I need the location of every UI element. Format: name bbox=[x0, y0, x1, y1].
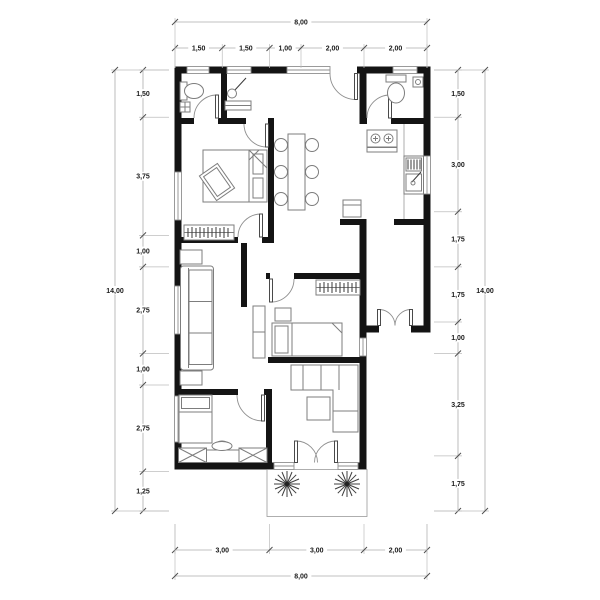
coffee-table-icon bbox=[307, 397, 330, 420]
toilet-icon bbox=[180, 82, 204, 100]
dim-label: 1,25 bbox=[136, 489, 150, 496]
plant-icon bbox=[334, 471, 360, 497]
dim-label: 2,75 bbox=[136, 308, 150, 315]
dimension-chains: 1,501,501,002,002,008,003,003,002,008,00… bbox=[103, 18, 498, 581]
dim-label: 2,75 bbox=[136, 426, 150, 433]
dim-label: 1,75 bbox=[451, 292, 465, 299]
dim-label: 14,00 bbox=[106, 288, 124, 295]
floor-plan-drawing: 1,501,501,002,002,008,003,003,002,008,00… bbox=[0, 0, 600, 600]
dim-label: 1,75 bbox=[451, 237, 465, 244]
window-icon bbox=[360, 338, 367, 356]
dim-label: 3,00 bbox=[451, 162, 465, 169]
cabinet-icon bbox=[253, 306, 265, 358]
door-swing-icon bbox=[237, 395, 265, 421]
dim-label: 1,50 bbox=[192, 45, 206, 52]
dim-label: 3,00 bbox=[215, 547, 229, 554]
dim-label: 8,00 bbox=[294, 19, 308, 26]
double-door-utility bbox=[378, 310, 413, 326]
dim-label: 3,00 bbox=[310, 547, 324, 554]
nightstand-icon bbox=[275, 308, 291, 321]
dim-label: 2,00 bbox=[326, 45, 340, 52]
single-bed-icon bbox=[272, 323, 342, 356]
dim-label: 3,75 bbox=[136, 174, 150, 181]
chair-icon bbox=[306, 139, 319, 152]
chair-icon bbox=[275, 139, 288, 152]
chair-icon bbox=[275, 193, 288, 206]
plant-icon bbox=[274, 471, 300, 497]
wardrobe-icon bbox=[316, 280, 360, 295]
dim-label: 1,00 bbox=[278, 45, 292, 52]
dim-label: 1,50 bbox=[136, 91, 150, 98]
door-swing-icon bbox=[367, 95, 392, 118]
chair-icon bbox=[306, 193, 319, 206]
dim-label: 14,00 bbox=[476, 288, 494, 295]
window-icon bbox=[424, 156, 431, 194]
door-swing-icon bbox=[238, 214, 263, 237]
dimension-chain-left: 1,503,751,002,751,002,751,2514,00 bbox=[103, 67, 170, 514]
chair-icon bbox=[275, 166, 288, 179]
toilet-icon bbox=[386, 75, 406, 103]
double-door-entry bbox=[295, 441, 338, 463]
dining-table-icon bbox=[275, 134, 319, 210]
shower-icon bbox=[225, 78, 251, 110]
door-swing-icon bbox=[244, 124, 269, 147]
dim-label: 1,50 bbox=[451, 91, 465, 98]
dim-label: 1,50 bbox=[239, 45, 253, 52]
desk-icon bbox=[205, 441, 241, 463]
dim-label: 3,25 bbox=[451, 402, 465, 409]
cabinet-icon bbox=[239, 448, 267, 463]
refrigerator-icon bbox=[343, 200, 361, 217]
window-icon bbox=[227, 67, 251, 74]
dim-label: 8,00 bbox=[294, 573, 308, 580]
stove-icon bbox=[367, 130, 397, 152]
dim-label: 1,00 bbox=[136, 367, 150, 374]
dim-label: 1,75 bbox=[451, 481, 465, 488]
porch bbox=[267, 470, 367, 517]
window-icon bbox=[175, 172, 182, 220]
dim-label: 1,00 bbox=[136, 249, 150, 256]
washbasin-icon bbox=[180, 102, 190, 112]
window-icon bbox=[393, 67, 417, 74]
dimension-chain-right: 1,503,001,751,751,003,251,7514,00 bbox=[434, 67, 498, 514]
side-table-icon bbox=[180, 250, 202, 264]
wardrobe-icon bbox=[184, 225, 234, 240]
chair-icon bbox=[212, 442, 232, 451]
door-swing-icon bbox=[330, 74, 358, 100]
window-icon bbox=[187, 67, 209, 74]
window-icon bbox=[274, 463, 294, 470]
window-icon bbox=[287, 67, 330, 74]
dim-label: 1,00 bbox=[451, 335, 465, 342]
dimension-chain-bottom: 3,003,002,008,00 bbox=[172, 524, 430, 581]
single-bed-icon bbox=[179, 395, 212, 443]
kitchen-sink-icon bbox=[404, 156, 424, 194]
dim-label: 2,00 bbox=[389, 45, 403, 52]
cabinet-icon bbox=[179, 448, 207, 463]
chair-icon bbox=[306, 166, 319, 179]
furniture bbox=[179, 75, 424, 463]
door-swing-icon bbox=[270, 279, 295, 302]
dim-label: 2,00 bbox=[389, 547, 403, 554]
window-icon bbox=[338, 463, 358, 470]
floor-plan-canvas: 1,501,501,002,002,008,003,003,002,008,00… bbox=[0, 0, 600, 600]
dimension-chain-top: 1,501,501,002,002,008,00 bbox=[172, 18, 430, 69]
side-table-icon bbox=[180, 371, 202, 385]
washbasin-icon bbox=[413, 77, 423, 87]
sofa-icon bbox=[181, 266, 214, 370]
